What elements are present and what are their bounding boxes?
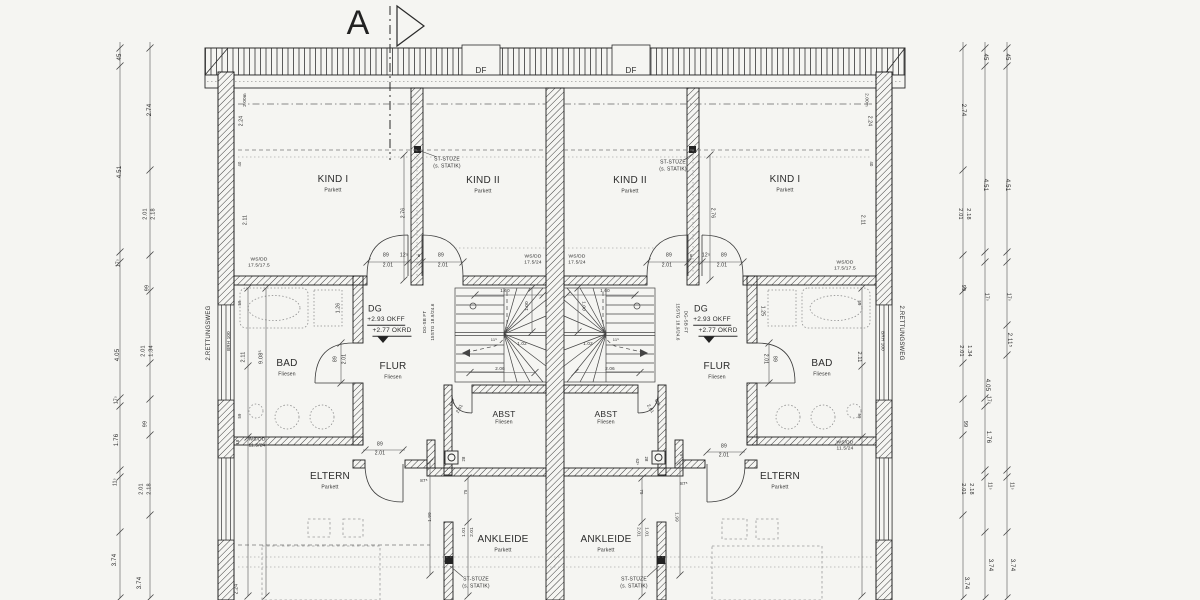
- room-label: BAD: [811, 359, 832, 369]
- dimension-label: 2.01: [375, 452, 386, 457]
- room-floor-label: Fliesen: [597, 421, 615, 426]
- dimension-label: 11⁵: [1009, 482, 1014, 490]
- dimension-label: 3.74: [963, 577, 969, 589]
- dimension-label: 2.76: [402, 208, 407, 219]
- dimension-label: 2.24: [867, 116, 872, 127]
- dimension-label: 1.76: [985, 431, 991, 443]
- dimension-label: 40: [869, 161, 873, 166]
- room-floor-label: Parkett: [621, 190, 638, 195]
- dimension-label: 89: [383, 254, 389, 259]
- dimension-label: 89: [721, 254, 727, 259]
- dimension-label: 75: [464, 489, 468, 494]
- dimension-label: 1.00: [581, 301, 586, 311]
- dimension-label: 4.51: [982, 179, 988, 191]
- room-floor-label: Parkett: [771, 486, 788, 491]
- level-label: DG: [368, 305, 382, 314]
- dimension-label: 2.01: [662, 264, 673, 269]
- dimension-label: 59: [857, 413, 861, 418]
- dimension-label: 1.34: [965, 345, 971, 357]
- dimension-label: 3.74: [1009, 559, 1015, 571]
- dimension-label: 12⁵: [702, 254, 710, 259]
- dimension-label: 63⁵: [653, 399, 661, 408]
- room-floor-label: Parkett: [474, 190, 491, 195]
- dimension-label: 18: [236, 439, 240, 444]
- column-note-label: (s. STATIK): [620, 585, 648, 590]
- room-label: ANKLEIDE: [477, 535, 528, 545]
- roof-window-label: DF: [625, 67, 636, 75]
- dimension-label: 2.01: [139, 483, 145, 495]
- dimension-label: 11⁵: [491, 338, 497, 342]
- dimension-label: 1.76: [114, 434, 120, 446]
- dimension-label: 2.01: [636, 527, 641, 537]
- dimension-label: 2.01: [456, 404, 465, 415]
- stair-spec-label: DG-SB FT: [423, 311, 428, 334]
- dimension-label: 89: [721, 445, 727, 450]
- dimension-label: 2.01: [957, 345, 963, 357]
- room-label: FLUR: [704, 362, 731, 372]
- dimension-label: 40: [238, 161, 242, 166]
- dimension-label: 2.01: [143, 208, 149, 220]
- dimension-label: 17⁵: [986, 396, 991, 404]
- room-label: KIND II: [466, 176, 500, 186]
- wall-spec-label: 11.5/24: [248, 445, 265, 450]
- dimension-label: 1.02: [583, 342, 593, 347]
- dimension-label: 2.24: [240, 116, 245, 127]
- dimension-label: 1.34: [149, 345, 155, 357]
- dimension-label: 6: [690, 254, 693, 258]
- room-label: KIND I: [770, 175, 801, 185]
- dimension-label: 1.00: [525, 301, 530, 311]
- dimension-label: 59: [857, 300, 861, 305]
- dimension-label: 2.06: [605, 367, 615, 372]
- dimension-label: 17⁵: [117, 259, 122, 267]
- dimension-label: 2.01: [956, 208, 962, 220]
- dimension-label: 2.18: [147, 483, 153, 495]
- level-label: +2.93 OKFF: [367, 317, 405, 326]
- dimension-label: 2.01: [141, 345, 147, 357]
- roof-window-label: DF: [475, 67, 486, 75]
- dimension-label: 1.02: [517, 342, 527, 347]
- room-floor-label: Parkett: [324, 189, 341, 194]
- dimension-label: 2.11⁵: [1006, 333, 1012, 348]
- dimension-label: 79: [679, 451, 683, 456]
- dimension-label: 2.01: [763, 354, 768, 365]
- stair-spec-label: 15STG 18.9/24.6: [675, 303, 680, 340]
- dimension-label: 1.26: [337, 303, 342, 314]
- dimension-label: 1.60: [500, 289, 510, 294]
- dimension-label: 1.99: [428, 512, 433, 522]
- room-label: ELTERN: [310, 472, 350, 482]
- dimension-label: 3.74: [112, 554, 118, 566]
- dimension-label: 62⁵: [635, 459, 639, 466]
- dimension-label: 89: [666, 254, 672, 259]
- dimension-label: 2.01: [646, 404, 655, 415]
- dimension-label: 89: [377, 443, 383, 448]
- dimension-label: 1.01: [462, 527, 467, 537]
- wall-spec-label: 17.5/17.5: [834, 268, 856, 273]
- dimension-label: 12⁵: [400, 254, 408, 259]
- column-note-label: (s. STATIK): [659, 168, 687, 173]
- dimension-label: 17⁵: [115, 396, 120, 404]
- escape-route-label: 2.RETTUNGSWEG: [206, 306, 212, 361]
- room-label: KIND I: [318, 175, 349, 185]
- section-letter: A: [347, 6, 370, 40]
- dimension-label: 2.18: [964, 208, 970, 220]
- dimension-label: 2.11: [855, 351, 861, 362]
- level-label: +2.77 OKRD: [698, 328, 737, 337]
- dimension-label: 2.06: [495, 367, 505, 372]
- room-floor-label: Fliesen: [495, 421, 513, 426]
- dimension-label: 1.99: [674, 512, 679, 522]
- wall-spec-label: 17.5/24: [524, 262, 541, 267]
- sill-height-label: BRH 100: [880, 331, 885, 351]
- dimension-label: 17⁵: [984, 293, 989, 301]
- dimension-label: 2.18: [967, 483, 973, 495]
- room-floor-label: Fliesen: [278, 373, 296, 378]
- dimension-label: 11⁵: [987, 482, 992, 490]
- dimension-label: 4.05: [984, 379, 990, 391]
- room-label: ABST: [594, 410, 617, 419]
- dimension-label: 4.05: [115, 349, 121, 361]
- level-label: +2.93 OKFF: [693, 317, 731, 326]
- level-label: +2.77 OKRD: [372, 328, 411, 337]
- dimension-label: 6: [418, 254, 421, 258]
- dimension-label: 99: [145, 285, 151, 292]
- dimension-label: 2.11: [860, 215, 865, 225]
- escape-route-label: 2.RETTUNGSWEG: [898, 306, 904, 361]
- stair-spec-label: 15STG 18.9/24.6: [431, 303, 436, 340]
- room-floor-label: Fliesen: [708, 376, 726, 381]
- dimension-label: 87⁵: [680, 482, 687, 487]
- dimension-label: 1.01: [644, 527, 649, 537]
- room-floor-label: Fliesen: [813, 373, 831, 378]
- labels-layer: ADFDFKIND IParkettKIND IIParkettKIND IIP…: [0, 0, 1200, 600]
- dimension-label: 75: [639, 489, 643, 494]
- dimension-label: 45: [982, 53, 988, 60]
- dimension-label: 59: [238, 413, 242, 418]
- dimension-label: 28: [644, 456, 648, 461]
- room-label: BAD: [276, 359, 297, 369]
- dimension-label: 2.11: [241, 351, 247, 362]
- dimension-label: 2.01: [717, 264, 728, 269]
- dimension-label: 3.74: [137, 577, 143, 589]
- dimension-label: 89: [334, 356, 339, 362]
- dimension-label: 3.74: [987, 559, 993, 571]
- dimension-label: 2.74: [147, 104, 153, 116]
- column-note-label: ST-STÜZE: [434, 158, 460, 163]
- column-note-label: (s. STATIK): [462, 585, 490, 590]
- dimension-label: 2.11: [244, 215, 249, 225]
- dimension-label: 2.74: [960, 104, 966, 116]
- dimension-label: 2.00m: [243, 93, 248, 107]
- dimension-label: 2.01: [438, 264, 449, 269]
- room-label: KIND II: [613, 176, 647, 186]
- dimension-label: 2.01: [343, 354, 348, 365]
- dimension-label: 99: [961, 421, 967, 428]
- floorplan-canvas: ADFDFKIND IParkettKIND IIParkettKIND IIP…: [0, 0, 1200, 600]
- dimension-label: 2.00m: [864, 93, 869, 107]
- dimension-label: 9.08⁵: [259, 350, 265, 364]
- dimension-label: 45: [1004, 53, 1010, 60]
- room-floor-label: Parkett: [776, 189, 793, 194]
- dimension-label: 2.01: [383, 264, 394, 269]
- dimension-label: 17⁵: [1006, 293, 1011, 301]
- dimension-label: 2.01: [719, 454, 730, 459]
- room-floor-label: Parkett: [597, 549, 614, 554]
- sill-height-label: BRH 100: [227, 331, 232, 351]
- dimension-label: 89: [772, 356, 777, 362]
- column-note-label: ST-STÜZE: [660, 161, 686, 166]
- dimension-label: 11⁵: [613, 338, 619, 342]
- dimension-label: 2.01: [959, 483, 965, 495]
- dimension-label: 87⁵: [420, 479, 427, 484]
- room-label: ANKLEIDE: [580, 535, 631, 545]
- stair-spec-label: DG-SB FT: [683, 311, 688, 334]
- room-label: ELTERN: [760, 472, 800, 482]
- dimension-label: 1.25: [760, 306, 765, 317]
- room-label: FLUR: [380, 362, 407, 372]
- wall-spec-label: 11.5/24: [836, 448, 853, 453]
- dimension-label: 28: [462, 456, 466, 461]
- dimension-label: 2.18: [151, 208, 157, 220]
- dimension-label: 1.60: [600, 289, 610, 294]
- room-floor-label: Parkett: [321, 486, 338, 491]
- level-label: DG: [694, 305, 708, 314]
- room-floor-label: Parkett: [494, 549, 511, 554]
- wall-spec-label: 17.5/24: [568, 262, 585, 267]
- room-label: ABST: [492, 410, 515, 419]
- wall-spec-label: 17.5/17.5: [248, 265, 270, 270]
- dimension-label: 11⁵: [114, 478, 119, 486]
- dimension-label: 63⁵: [449, 399, 457, 408]
- dimension-label: 4.51: [117, 166, 123, 178]
- dimension-label: 89: [438, 254, 444, 259]
- room-floor-label: Fliesen: [384, 376, 402, 381]
- dimension-label: 59: [238, 300, 242, 305]
- dimension-label: 2.01: [470, 527, 475, 537]
- dimension-label: 4.51: [1004, 179, 1010, 191]
- column-note-label: ST-STÜZE: [621, 578, 647, 583]
- dimension-label: 2.24: [235, 584, 240, 595]
- dimension-label: 2.76: [710, 208, 715, 219]
- dimension-label: 45: [117, 53, 123, 60]
- dimension-label: 99: [143, 421, 149, 428]
- column-note-label: (s. STATIK): [433, 165, 461, 170]
- dimension-label: 99: [959, 285, 965, 292]
- column-note-label: ST-STÜZE: [463, 578, 489, 583]
